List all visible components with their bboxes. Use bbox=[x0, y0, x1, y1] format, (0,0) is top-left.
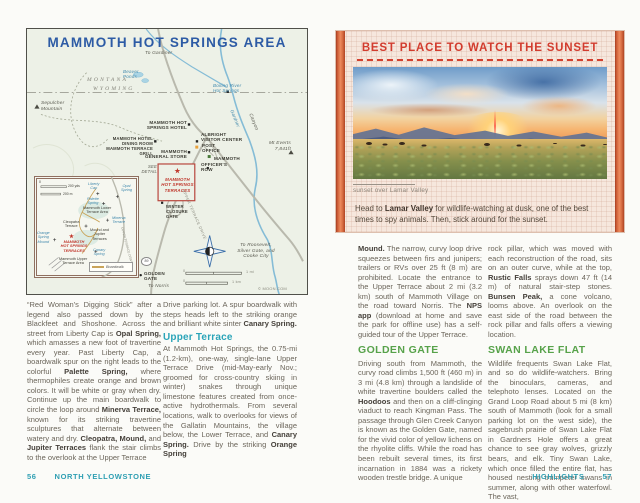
label-post-office: POST OFFICE bbox=[202, 143, 220, 154]
sepulcher-peak-triangle bbox=[34, 104, 39, 108]
label-winter-closure-gate: WINTER CLOSURE GATE bbox=[166, 205, 188, 220]
sagebrush-texture bbox=[353, 143, 607, 179]
right-column-2: rock pillar, which was moved with each r… bbox=[488, 244, 612, 503]
paragraph: Mound. The narrow, curvy loop drive sque… bbox=[358, 244, 482, 339]
inset-palette-spring: Palette Spring bbox=[87, 197, 99, 206]
inset-upper-terrace-area: Mammoth Upper Terrace Area bbox=[59, 257, 87, 266]
label-boiling-river: Boiling River Hot Springs bbox=[213, 83, 241, 94]
terraces-inset-map: 0 200 yds 200 m Liberty Cap Opal Spring … bbox=[34, 176, 139, 278]
scale-km: 1 km bbox=[232, 280, 241, 284]
callout-title: BEST PLACE TO WATCH THE SUNSET bbox=[345, 42, 615, 54]
paragraph: At Mammoth Hot Springs, the 0.75-mi (1.2… bbox=[163, 344, 297, 459]
inset-lower-terrace-area: Mammoth Lower Terrace Area bbox=[83, 206, 111, 215]
book-spread: MAMMOTH HOT SPRINGS AREA To Gardiner MON… bbox=[0, 0, 640, 498]
map-copyright: © MOON.COM bbox=[258, 287, 287, 292]
inset-minerva-terrace: Minerva Terrace bbox=[112, 216, 126, 225]
right-page-footer: HIGHLIGHTS57 bbox=[532, 472, 612, 481]
callout-right-bar bbox=[615, 31, 624, 232]
map-title: MAMMOTH HOT SPRINGS AREA bbox=[27, 35, 307, 50]
cloud bbox=[521, 96, 597, 116]
label-sepulcher-mountain: Sepulcher Mountain bbox=[41, 101, 64, 112]
paragraph: Drive parking lot. A spur boardwalk with… bbox=[163, 300, 297, 329]
boardwalk-legend-label: Boardwalk bbox=[106, 265, 124, 269]
paragraph: Driving south from Mammoth, the curvy ro… bbox=[358, 359, 482, 483]
inset-scale-m: 200 m bbox=[63, 193, 72, 197]
star-icon: ★ bbox=[159, 168, 196, 176]
label-to-norris: To Norris bbox=[148, 284, 169, 290]
callout-left-bar bbox=[336, 31, 345, 232]
sunset-photo bbox=[353, 67, 607, 179]
photo-caption: sunset over Lamar Valley bbox=[353, 187, 428, 194]
route-89-shield: 89 bbox=[141, 257, 152, 266]
dashed-divider bbox=[357, 59, 603, 61]
boardwalk-line-sample bbox=[92, 266, 104, 268]
paragraph: rock pillar, which was moved with each r… bbox=[488, 244, 612, 339]
trail-beaver-ponds bbox=[71, 73, 109, 147]
label-see-detail: SEE DETAIL bbox=[137, 165, 157, 175]
compass-rose bbox=[194, 235, 226, 267]
left-column-1: “Red Woman’s Digging Stick” after a lege… bbox=[27, 300, 161, 463]
paragraph: “Red Woman’s Digging Stick” after a lege… bbox=[27, 300, 161, 462]
label-mammoth-hotel: MAMMOTH HOT SPRINGS HOTEL bbox=[145, 120, 187, 131]
inset-mound-jupiter: Mound and Jupiter Terraces bbox=[90, 228, 109, 241]
left-column-2: Drive parking lot. A spur boardwalk with… bbox=[163, 300, 297, 460]
label-to-gardiner: To Gardiner bbox=[145, 51, 172, 57]
section-name: HIGHLIGHTS bbox=[532, 472, 584, 481]
label-general-store: MAMMOTH GENERAL STORE bbox=[145, 149, 187, 160]
heading-golden-gate: GOLDEN GATE bbox=[358, 346, 482, 356]
callout-body: Head to Lamar Valley for wildlife-watchi… bbox=[355, 203, 605, 225]
label-to-roosevelt: To Roosevelt, Silver Gate, and Cooke Cit… bbox=[233, 243, 279, 260]
beaver-pond bbox=[142, 79, 149, 83]
sunset-callout-box: BEST PLACE TO WATCH THE SUNSET sunset ov… bbox=[335, 30, 625, 233]
right-column-1: Mound. The narrow, curvy loop drive sque… bbox=[358, 244, 482, 484]
inset-orange-spring-mound: Orange Spring Mound bbox=[37, 231, 50, 244]
label-montana: MONTANA bbox=[87, 77, 128, 84]
scale-zero-mi: 0 bbox=[183, 269, 185, 273]
inset-scale-zero: 0 bbox=[39, 181, 41, 185]
label-terraces-main: MAMMOTH HOT SPRINGS TERRACES bbox=[159, 177, 196, 193]
label-wyoming: WYOMING bbox=[93, 86, 135, 93]
inset-terraces-label: MAMMOTH HOT SPRINGS TERRACES bbox=[57, 240, 91, 253]
heading-upper-terrace: Upper Terrace bbox=[163, 333, 297, 343]
label-officers-row: OFFICER'S ROW bbox=[201, 162, 227, 173]
label-mammoth: MAMMOTH bbox=[214, 156, 240, 161]
inset-canary-spring: Canary Spring bbox=[93, 248, 105, 257]
label-visitor-center: ALBRIGHT VISITOR CENTER bbox=[201, 132, 242, 143]
cloud bbox=[368, 103, 490, 118]
page-number: 57 bbox=[602, 472, 612, 481]
scale-mi: 1 mi bbox=[246, 270, 254, 274]
scale-zero-km: 0 bbox=[183, 279, 185, 283]
boardwalk-legend: Boardwalk bbox=[89, 262, 133, 272]
section-name: NORTH YELLOWSTONE bbox=[55, 472, 152, 481]
inset-scale-yds: 200 yds bbox=[68, 185, 80, 189]
left-page-footer: 56NORTH YELLOWSTONE bbox=[27, 472, 151, 481]
page-number: 56 bbox=[27, 472, 37, 481]
inset-cleopatra-terrace: Cleopatra Terrace bbox=[63, 220, 79, 229]
label-mt-everts: Mt Everts 7,841ft bbox=[257, 141, 291, 152]
inset-liberty-cap: Liberty Cap bbox=[88, 182, 99, 191]
map-mammoth-hot-springs: MAMMOTH HOT SPRINGS AREA To Gardiner MON… bbox=[26, 28, 308, 295]
cloud bbox=[424, 83, 510, 105]
label-golden-gate: GOLDEN GATE bbox=[144, 271, 165, 282]
caption-rule bbox=[353, 184, 415, 185]
heading-swan-lake-flat: SWAN LAKE FLAT bbox=[488, 346, 612, 356]
inset-opal-spring: Opal Spring bbox=[121, 184, 132, 193]
label-beaver-ponds: Beaver Ponds bbox=[123, 69, 137, 80]
